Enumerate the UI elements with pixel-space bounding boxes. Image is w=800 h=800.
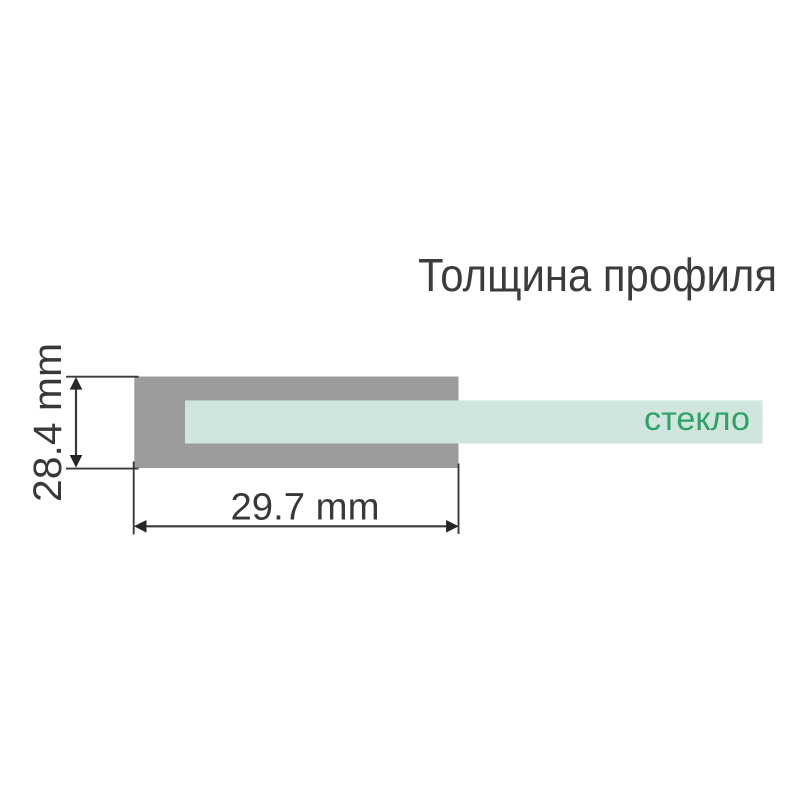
- svg-text:Толщина профиля: Толщина профиля: [418, 249, 777, 301]
- svg-text:29.7 mm: 29.7 mm: [231, 487, 380, 529]
- svg-text:стекло: стекло: [644, 400, 750, 437]
- svg-text:28.4 mm: 28.4 mm: [26, 343, 70, 502]
